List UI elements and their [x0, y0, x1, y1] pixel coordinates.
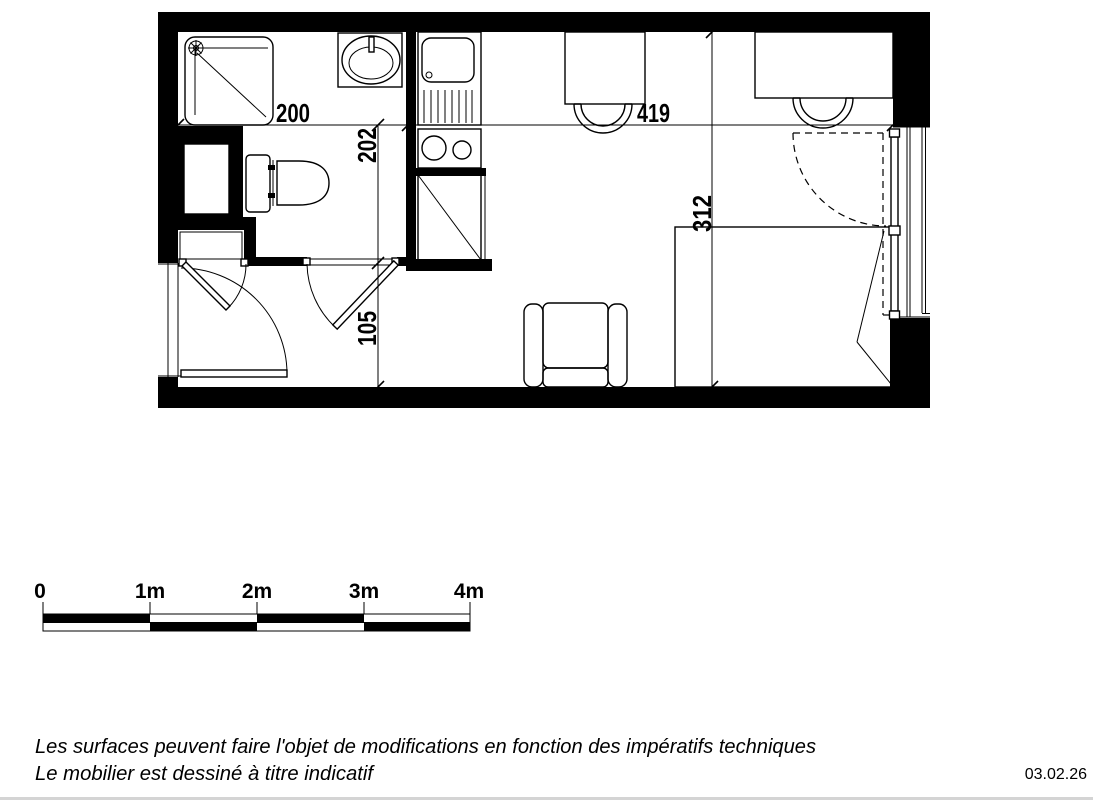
toilet-cistern — [246, 155, 270, 212]
window-radiator — [889, 129, 900, 319]
shower — [185, 37, 273, 125]
dim-label-312: 312 — [687, 195, 717, 232]
scale-label-3m: 3m — [349, 580, 379, 603]
wall-right-upper — [893, 12, 930, 127]
armchair-right-arm — [608, 304, 627, 387]
dim-label-419: 419 — [637, 98, 670, 128]
window — [793, 127, 930, 319]
armchair-left-arm — [524, 304, 543, 387]
bed-fold-line-2 — [857, 342, 891, 384]
desk-2-top — [755, 32, 893, 98]
closet-niche — [180, 232, 242, 259]
bathroom-door-swing-arc — [307, 264, 335, 327]
shower-diagonal — [197, 53, 266, 117]
desk-1 — [565, 32, 645, 133]
wall-left-upper — [158, 12, 178, 263]
toilet — [246, 155, 329, 212]
scale-label-2m: 2m — [242, 580, 272, 603]
shower-drain-icon — [188, 40, 204, 56]
shower-tray-inner-line — [195, 48, 268, 115]
bed — [675, 227, 893, 387]
armchair-back — [543, 303, 608, 368]
scale-label-4m: 4m — [454, 580, 484, 603]
note-line-1: Les surfaces peuvent faire l'objet de mo… — [35, 736, 816, 758]
chair-1 — [574, 104, 632, 133]
closet-door-swing-arc — [228, 264, 246, 308]
window-swing-arc — [793, 133, 886, 226]
washbasin-tap-icon — [369, 37, 374, 52]
scale-label-0: 0 — [34, 580, 46, 603]
dim-label-202: 202 — [352, 128, 382, 163]
technical-shaft-bottom — [178, 217, 256, 230]
entrance-door — [158, 263, 287, 377]
fridge-diagonal — [418, 175, 481, 260]
scale-label-1m: 1m — [135, 580, 165, 603]
bed-fold-line-1 — [857, 231, 884, 342]
hob-burner-large — [422, 136, 446, 160]
kitchen-bottom-wall — [406, 259, 492, 271]
bathroom-door — [303, 258, 399, 329]
entrance-door-leaf — [181, 370, 287, 377]
bathroom-door-jamb-left — [303, 258, 310, 265]
desk-2 — [755, 32, 893, 128]
toilet-bowl — [277, 161, 329, 205]
kitchen-sink — [422, 38, 474, 82]
bed-outline — [675, 227, 893, 387]
dim-label-105: 105 — [352, 311, 382, 346]
kitchenette — [418, 32, 485, 260]
dim-label-200: 200 — [276, 98, 310, 128]
closet-door-leaf — [182, 262, 230, 310]
armchair — [524, 303, 627, 387]
note-line-2: Le mobilier est dessiné à titre indicati… — [35, 763, 375, 785]
wall-bottom — [158, 387, 930, 408]
window-casement-dashed — [793, 133, 893, 315]
page: 200 419 202 105 312 0 1m 2m 3m 4m Les su… — [0, 0, 1093, 800]
chair-2 — [793, 98, 853, 128]
closet-door-jamb-right — [241, 259, 248, 266]
desk-1-top — [565, 32, 645, 104]
scale-bar-segments — [43, 614, 470, 631]
walls — [158, 12, 930, 408]
scale-ticks — [43, 602, 470, 614]
partition-bathroom-kitchen — [406, 32, 416, 263]
toilet-hinge-top — [268, 165, 275, 170]
kitchen-sink-drain-icon — [426, 72, 432, 78]
wall-top — [158, 12, 930, 32]
footer: Les surfaces peuvent faire l'objet de mo… — [35, 736, 1087, 785]
kitchen-drainboard — [424, 90, 472, 123]
toilet-hinge-bottom — [268, 193, 275, 198]
plan-date: 03.02.26 — [1025, 766, 1087, 783]
floor-plan-drawing: 200 419 202 105 312 0 1m 2m 3m 4m Les su… — [0, 0, 1093, 800]
technical-shaft-inner — [184, 144, 229, 214]
armchair-seat — [543, 368, 608, 387]
hob-burner-small — [453, 141, 471, 159]
entrance-door-swing-arc — [181, 268, 287, 373]
wall-right-lower — [890, 318, 930, 408]
washbasin — [338, 33, 402, 87]
scale-bar: 0 1m 2m 3m 4m — [34, 580, 484, 631]
dimension-lines: 200 419 202 105 312 — [160, 26, 905, 393]
